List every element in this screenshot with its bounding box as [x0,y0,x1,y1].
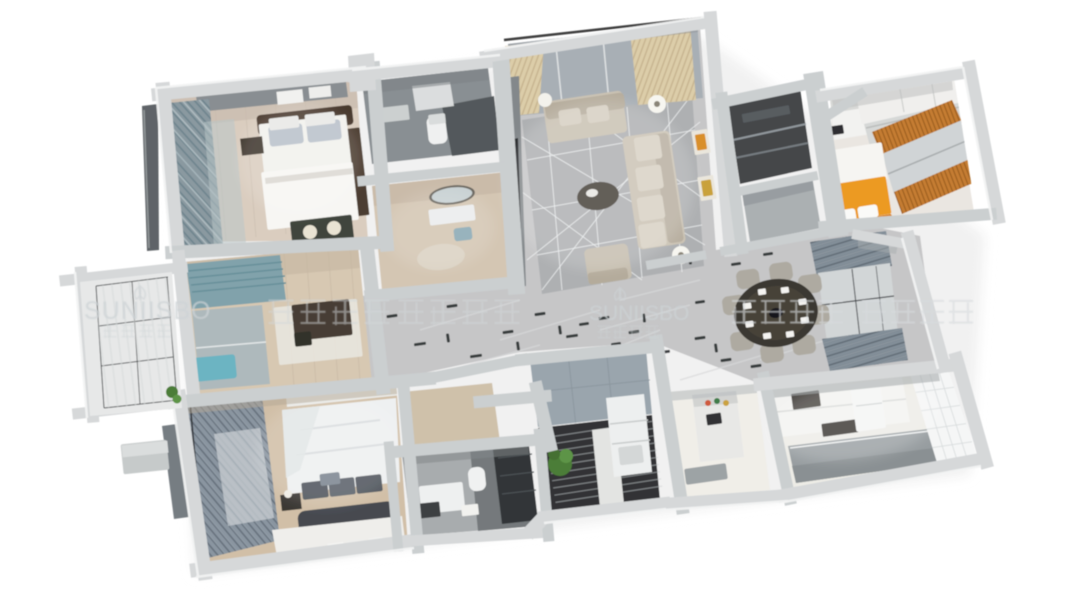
svg-text:SUNIISBO: SUNIISBO [84,297,211,325]
svg-text:SUNIISBO: SUNIISBO [589,302,689,325]
